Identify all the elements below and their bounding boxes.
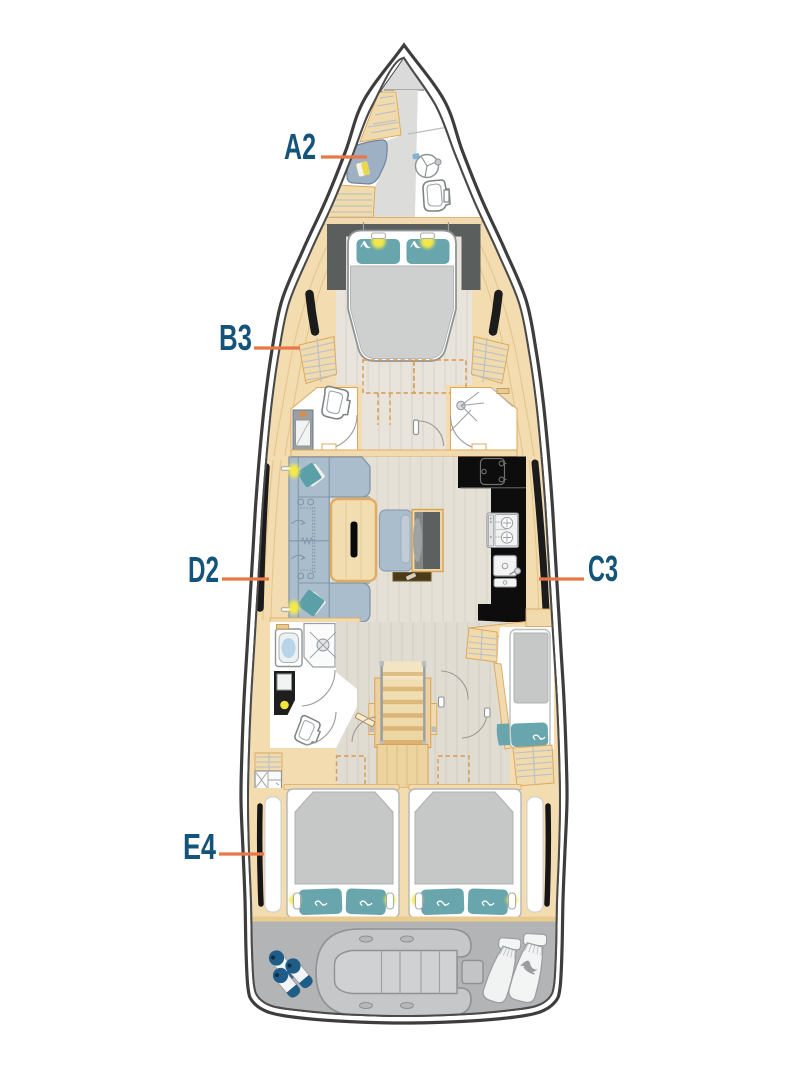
svg-text:E4: E4 xyxy=(183,826,216,867)
svg-text:B3: B3 xyxy=(219,317,252,358)
svg-text:A2: A2 xyxy=(284,126,316,167)
svg-text:C3: C3 xyxy=(588,548,618,589)
svg-text:D2: D2 xyxy=(188,549,219,590)
